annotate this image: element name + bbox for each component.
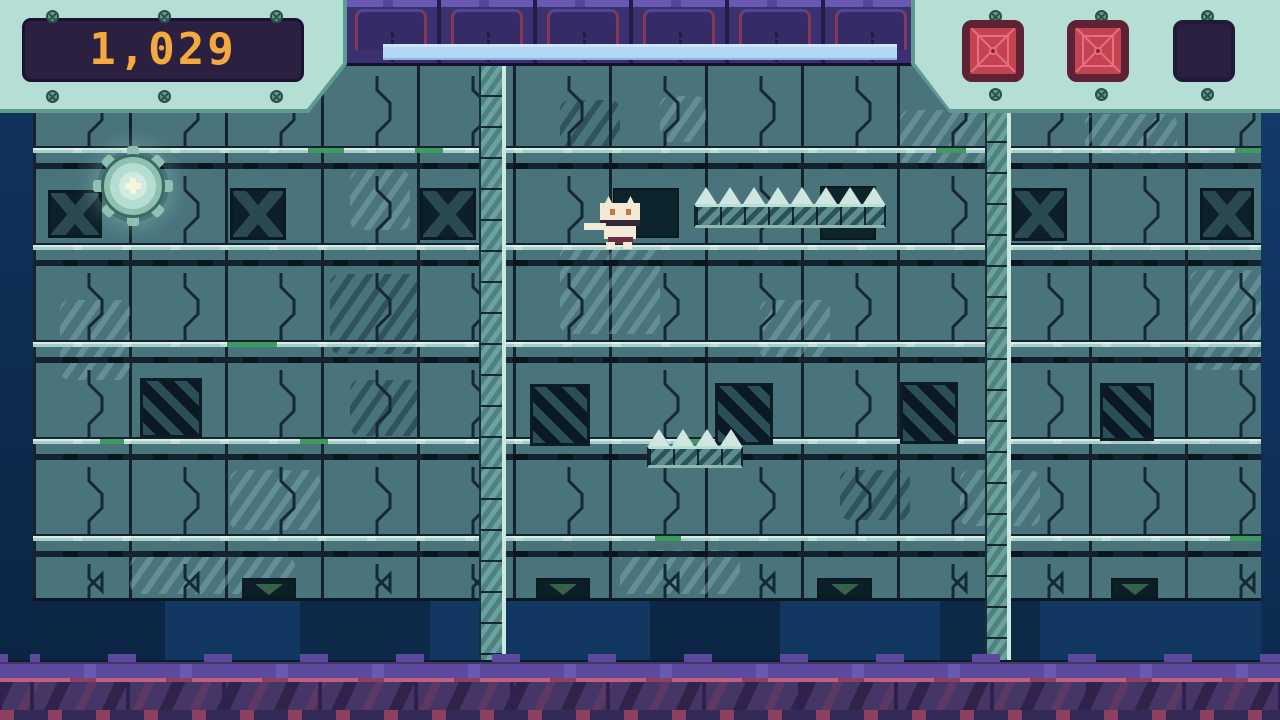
striped-hatch-panel	[140, 378, 202, 438]
hazard-platform	[694, 204, 886, 228]
floor-body	[0, 682, 1280, 710]
score-panel: 1,029	[0, 0, 343, 109]
cross-brace-panel	[48, 190, 102, 238]
screw-icon	[1201, 88, 1214, 101]
striped-hatch-panel	[530, 384, 590, 446]
screw-icon	[989, 88, 1002, 101]
spike-hazard-icon	[672, 429, 694, 446]
spike-hazard-icon	[863, 187, 885, 204]
player-leg	[623, 242, 632, 249]
screw-icon	[270, 90, 283, 103]
slot-gem-detail	[1094, 47, 1102, 55]
score-display: 1,029	[22, 18, 304, 82]
wall-rail-groove	[33, 163, 1262, 169]
game-viewport[interactable]: 1,029	[0, 0, 1280, 720]
player-leg	[606, 242, 615, 249]
item-slot-1	[962, 20, 1024, 82]
spike-hazard-icon	[719, 187, 741, 204]
right-edge-column	[1261, 106, 1280, 660]
left-edge-column	[0, 106, 33, 660]
wall-rail-highlight	[33, 340, 1262, 347]
ceiling-tile-cap	[537, 0, 629, 7]
ceiling-tile-cap	[345, 0, 437, 7]
cross-brace-panel	[230, 188, 286, 240]
hazard-platform	[647, 446, 743, 468]
player-character	[599, 196, 643, 246]
health-bar	[383, 44, 897, 60]
vent-chevron-icon	[255, 584, 283, 595]
screw-icon	[46, 90, 59, 103]
vent-chevron-icon	[1121, 584, 1149, 595]
ceiling-tile-cap	[441, 0, 533, 7]
wall-texture-patch	[1190, 270, 1270, 370]
vent-chevron-icon	[831, 584, 859, 595]
gear-pickup	[97, 150, 169, 222]
health-bar-fill	[383, 44, 897, 60]
wall-rail-highlight	[33, 146, 1262, 153]
player-eye	[626, 209, 631, 215]
item-slot-2	[1067, 20, 1129, 82]
wall-texture-patch	[350, 380, 420, 436]
spike-hazard-icon	[695, 187, 717, 204]
wall-rail-groove	[33, 260, 1262, 266]
spike-row	[694, 187, 886, 204]
wall-texture-patch	[900, 110, 990, 166]
floor-tabs	[0, 654, 1280, 662]
rail-green-segment	[655, 536, 681, 541]
wall-rail-highlight	[33, 534, 1262, 541]
slot-gem-detail	[989, 47, 997, 55]
wall-rail-groove	[33, 551, 1262, 557]
vent-panel	[536, 578, 590, 598]
cross-brace-panel	[1200, 188, 1254, 240]
ceiling-tile-cap	[825, 0, 913, 7]
vent-panel	[817, 578, 872, 598]
wall-texture-patch	[350, 170, 410, 230]
wall-texture-patch	[560, 100, 620, 150]
striped-hatch-panel	[900, 382, 958, 444]
wall-texture-patch	[760, 300, 830, 360]
spike-hazard-icon	[839, 187, 861, 204]
cross-brace-panel	[1012, 188, 1067, 241]
vent-panel	[242, 578, 296, 598]
ladder-column	[985, 110, 1011, 660]
rail-green-segment	[936, 148, 966, 153]
ladder-column	[479, 64, 506, 660]
screw-icon	[46, 10, 59, 23]
spike-hazard-icon	[767, 187, 789, 204]
striped-hatch-panel	[1100, 383, 1154, 441]
screw-icon	[158, 10, 171, 23]
screw-icon	[270, 10, 283, 23]
lower-gallery	[0, 598, 1280, 660]
wall-texture-patch	[840, 470, 910, 520]
gear-plush	[125, 183, 141, 189]
floor-bottom-band	[0, 710, 1280, 720]
item-slot-3	[1173, 20, 1235, 82]
rail-green-segment	[308, 148, 344, 153]
ceiling-tile-cap	[633, 0, 725, 7]
floor	[0, 660, 1280, 720]
vent-chevron-icon	[549, 584, 577, 595]
wall-rail-highlight	[33, 243, 1262, 250]
spike-hazard-icon	[648, 429, 670, 446]
rail-green-segment	[1235, 148, 1262, 153]
item-panel	[915, 0, 1280, 109]
spike-hazard-icon	[720, 429, 742, 446]
spike-hazard-icon	[743, 187, 765, 204]
vent-panel	[1111, 578, 1158, 598]
cross-brace-panel	[420, 188, 476, 240]
player-eye	[610, 209, 615, 215]
rail-green-segment	[100, 439, 124, 444]
rail-green-segment	[415, 148, 443, 153]
rail-green-segment	[300, 439, 328, 444]
score-value: 1,029	[89, 28, 236, 72]
spike-hazard-icon	[791, 187, 813, 204]
screw-icon	[1095, 88, 1108, 101]
floor-cap-band	[0, 664, 1280, 678]
screw-icon	[158, 90, 171, 103]
player-arm	[584, 223, 606, 230]
wall-rail-groove	[33, 357, 1262, 363]
rail-green-segment	[1230, 536, 1262, 541]
wall-texture-patch	[230, 470, 320, 530]
wall-texture-patch	[660, 96, 706, 142]
ceiling-tile-cap	[729, 0, 821, 7]
spike-row	[647, 429, 743, 446]
spike-hazard-icon	[696, 429, 718, 446]
spike-hazard-icon	[815, 187, 837, 204]
rail-green-segment	[227, 342, 277, 347]
